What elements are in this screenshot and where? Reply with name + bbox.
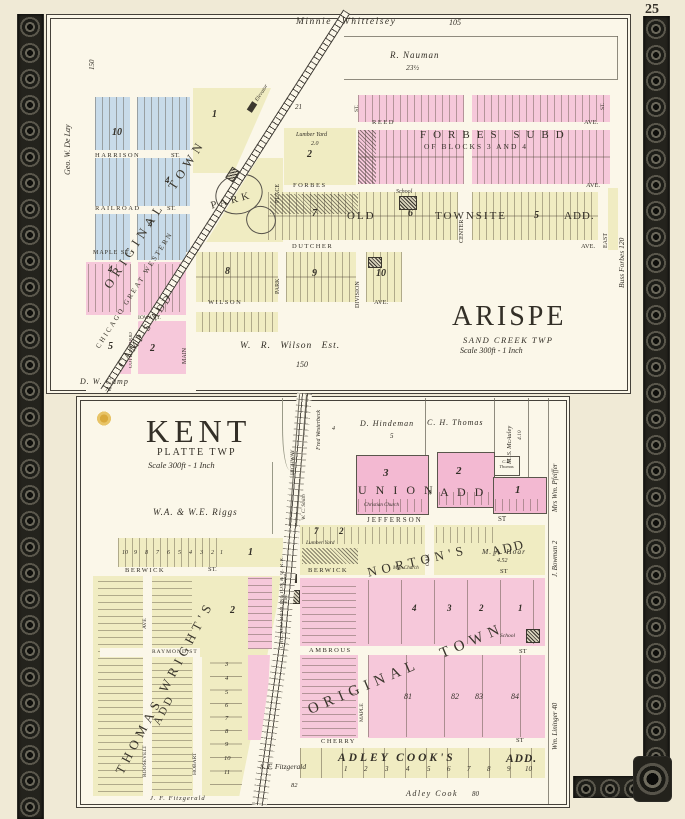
adley-cooks-add-suffix: ADD. — [506, 754, 537, 766]
adley-lot: 5 — [427, 766, 431, 773]
roosevelt-street-label: ROOSEVELT — [143, 715, 149, 777]
owner-delay: Geo. W. De Lay — [64, 55, 72, 175]
block-3-number: 3 — [148, 219, 153, 228]
block-7-number: 7 — [312, 209, 317, 219]
camps-block-2-number: 2 — [150, 344, 155, 354]
block-6-number: 6 — [408, 209, 413, 219]
wrights-top-lot: 5 — [178, 550, 181, 556]
school-label-arispe: School — [396, 189, 412, 195]
lot-83-number: 83 — [475, 693, 483, 701]
wrights-top-lot: 6 — [167, 550, 170, 556]
owner-adley-cook: Adley Cook — [406, 790, 458, 798]
forbes-ave-suffix: AVE. — [586, 183, 600, 190]
nauman-parcel-line-right — [617, 36, 618, 79]
harrison-street-label: HARRISON — [95, 153, 140, 160]
hobart-street-gap — [193, 657, 202, 796]
owner-nauman-acres: 23½ — [406, 64, 419, 72]
nauman-parcel-line-bottom — [344, 79, 618, 80]
block-2-number: 2 — [307, 150, 312, 160]
division-street-label: DIVISION — [355, 254, 361, 308]
owner-camp: D. W. Camp — [80, 378, 129, 386]
nauman-parcel-line-top — [344, 36, 618, 37]
camps-block-5-number: 5 — [108, 342, 113, 352]
owner-hoar: M. A. Hoar — [482, 548, 526, 556]
owner-strip-line — [548, 398, 549, 804]
old-townsite-add: ADD. — [564, 211, 595, 222]
dutcher-street-label: DUTCHER — [292, 244, 333, 251]
wilson-south-lots — [195, 312, 278, 332]
owner-westerbeck-acres: 4 — [332, 426, 335, 432]
wrights-right-lot: 3 — [225, 662, 228, 669]
ink-blotch — [96, 410, 112, 427]
east-street-label: EAST — [603, 210, 609, 248]
parcel-line-3 — [528, 398, 529, 478]
berwick-st-suffix-east: ST — [500, 569, 508, 576]
union-block1-lots — [495, 499, 543, 511]
adley-lot: 7 — [467, 766, 471, 773]
adley-lot: 2 — [364, 766, 368, 773]
lumber-yard-acres: 2.0 — [311, 141, 319, 147]
depot-label-kent: Depot — [283, 571, 288, 585]
iowa-street-gap — [86, 315, 186, 321]
wrights-top-lot: 7 — [156, 550, 159, 556]
me-church-label: M.E. Church — [393, 566, 419, 571]
wrights-block2-number: 2 — [230, 606, 235, 616]
berwick-street-label-west: BERWICK — [125, 568, 165, 575]
owner-fitzgerald-j: J. F. Fitzgerald — [150, 796, 206, 803]
block-4-number: 4 — [165, 176, 170, 185]
reed-ave-suffix: AVE. — [584, 120, 598, 127]
original-block3-number: 3 — [447, 604, 452, 613]
cherry-street-label: CHERRY — [321, 739, 356, 746]
block9-area — [286, 252, 356, 302]
place-street-label: PLACE — [275, 163, 281, 203]
wrights-block1-number: 1 — [248, 548, 253, 558]
maple-street-label-kent: MAPLE — [360, 692, 366, 722]
block8-area — [195, 252, 278, 302]
wrights-right-lot: 4 — [225, 676, 228, 683]
union-block3-number: 3 — [383, 468, 389, 479]
adley-lot: 4 — [406, 766, 410, 773]
union-add-suffix: A D D — [440, 486, 486, 498]
owner-hoar-acres: 4.52 — [497, 558, 508, 564]
old-townsite-old: OLD — [347, 211, 376, 222]
parcel-21-number: 21 — [295, 104, 302, 111]
berwick-st-suffix-west: ST. — [208, 567, 217, 574]
adley-lot: 6 — [447, 766, 451, 773]
wrights-top-lot: 1 — [220, 550, 223, 556]
owner-fitzgerald-s: S. F. Fitzgerald — [260, 763, 306, 771]
forbes-subd-subtitle: OF BLOCKS 3 AND 4 — [424, 143, 528, 151]
camps-block-4-number: 4 — [108, 265, 113, 274]
wrights-right-lot: 11 — [224, 770, 230, 777]
block-5-number: 5 — [534, 211, 539, 221]
owner-lininger: Wm. Lininger 40 — [552, 655, 559, 750]
forbes-subd-hatched-lots — [358, 130, 376, 184]
adley-lot: 8 — [487, 766, 491, 773]
union-block2-number: 2 — [456, 466, 462, 477]
ambrous-street-label: AMBROUS — [309, 648, 352, 655]
kent-scale: Scale 300ft - 1 Inch — [148, 461, 215, 470]
wrights-right-lot: 9 — [225, 742, 228, 749]
ambrous-st-suffix: ST — [519, 649, 527, 656]
owner-westerbeck: Fred Westerbeck — [316, 402, 322, 450]
union-street-label: ST — [428, 479, 433, 495]
owner-smith: W. C. Smith — [302, 492, 308, 520]
wilson-ave-suffix: AVE. — [374, 300, 388, 307]
adley-cooks-title: ADLEY COOK'S — [338, 753, 456, 765]
old-townsite-townsite: TOWNSITE — [435, 211, 507, 222]
corner-rosette-ornament — [633, 756, 672, 802]
wilson-street-label: WILSON — [208, 300, 242, 307]
berwick-street-label-east: BERWICK — [308, 568, 348, 575]
adley-lot: 1 — [344, 766, 348, 773]
owner-wilson-acres: 150 — [296, 361, 308, 369]
owner-bowman: J. Bowman 2 — [552, 522, 559, 577]
owner-thomas-small: C.H. Thomas — [496, 460, 517, 469]
hobart-street-label: HOBART — [193, 730, 199, 775]
nortons-block7-number: 7 — [314, 527, 319, 536]
block-1-number: 1 — [212, 110, 217, 120]
adley-lot: 3 — [385, 766, 389, 773]
wrights-right-lot: 5 — [225, 690, 228, 697]
owner-fitzgerald-s-acres: 82 — [291, 783, 298, 790]
owner-hindeman-acres: 5 — [390, 433, 394, 440]
owner-nauman: R. Nauman — [390, 51, 440, 60]
wrights-top-lot: 10 — [122, 550, 128, 556]
wrights-right-lot: 10 — [224, 756, 231, 763]
pink-strip-north — [248, 577, 272, 649]
forbes-subd-north-row — [358, 95, 610, 122]
lot-82-number: 82 — [451, 693, 459, 701]
christian-church-label: Christian Church — [364, 503, 399, 508]
wrights-right-lot: 8 — [225, 729, 228, 736]
owner-pfeiffer: Mrs Wm. Pfeiffer — [552, 412, 559, 512]
nortons-block2-number: 2 — [339, 527, 344, 536]
railroad-st-suffix: ST. — [167, 206, 176, 213]
owner-camp-acres: 72 — [105, 387, 112, 394]
original-block1-number: 1 — [518, 604, 523, 613]
berwick-street-gap — [93, 567, 283, 576]
wrights-top-lot: 8 — [145, 550, 148, 556]
school-building-kent — [526, 629, 540, 643]
owner-adley-cook-acres: 80 — [472, 791, 479, 798]
parcel-line-1 — [425, 398, 426, 455]
adley-lot: 10 — [525, 766, 532, 773]
left-border-ornament — [17, 14, 44, 819]
adley-lot: 9 — [507, 766, 511, 773]
kent-title: KENT — [146, 415, 251, 447]
arispe-title: ARISPE — [452, 303, 566, 331]
dutcher-ave-suffix: AVE. — [581, 244, 595, 251]
owner-wilson-est: W. R. Wilson Est. — [240, 342, 340, 352]
union-add-title: U N I O N — [358, 484, 436, 496]
lumber-yard-label: Lumber Yard — [296, 132, 327, 138]
block-10b-number: 10 — [376, 269, 386, 279]
wrights-top-lot: 2 — [211, 550, 214, 556]
nortons-lots-east — [436, 527, 498, 543]
jefferson-street-label: JEFFERSON — [367, 517, 423, 524]
arispe-scale: Scale 300ft - 1 Inch — [460, 347, 523, 355]
page-number: 25 — [645, 3, 659, 17]
owner-buss-forbes: Buss Forbes 120 — [618, 188, 626, 288]
wrights-right-lot: 6 — [225, 703, 228, 710]
raymond-street-label: RAYMOND ST — [152, 650, 198, 656]
harrison-st-suffix: ST. — [171, 153, 180, 160]
original-lots-west-n — [302, 580, 356, 643]
reed-street-label: REED — [372, 120, 395, 127]
forbes-subd-title: FORBES SUBD — [420, 130, 571, 141]
east-st-suffix: ST. — [601, 92, 607, 110]
owner-hindeman: D. Hindeman — [360, 420, 414, 428]
wrights-top-lot: 4 — [189, 550, 192, 556]
lumber-yard-kent: Lumber Yard — [306, 541, 334, 547]
owner-mcauley: M. S. McAuley — [507, 402, 514, 464]
park-street-label: PARK — [275, 258, 281, 294]
railroad-street-label: RAILROAD — [95, 206, 141, 213]
owner-whittelsey: Minnie Whittelsey — [296, 18, 396, 28]
main-street-label: MAIN — [182, 320, 188, 364]
right-border-ornament — [643, 16, 670, 772]
owner-thomas: C. H. Thomas — [427, 419, 483, 427]
owner-riggs: W.A. & W.E. Riggs — [153, 508, 238, 517]
wrights-top-lot: 9 — [134, 550, 137, 556]
lot-81-number: 81 — [404, 693, 412, 701]
highway-label: HIGHWAY — [291, 437, 297, 475]
subd-st-label: ST. — [355, 94, 361, 112]
jefferson-st-suffix: ST — [498, 516, 506, 523]
wrights-right-lot: 7 — [225, 716, 228, 723]
owner-whittelsey-acres: 105 — [449, 19, 461, 27]
block-9-number: 9 — [312, 269, 317, 279]
school-label-kent: School — [500, 634, 515, 640]
original-block2-number: 2 — [479, 604, 484, 613]
roosevelt-ave-suffix: AVE — [143, 605, 149, 629]
union-block1-number: 1 — [515, 485, 521, 496]
original-block4-number: 4 — [412, 604, 417, 613]
church-building-arispe — [368, 257, 382, 268]
owner-delay-acres: 150 — [89, 50, 96, 70]
wrights-top-lot: 3 — [200, 550, 203, 556]
elev-label-kent: Elev. — [284, 589, 289, 603]
arispe-township: SAND CREEK TWP — [463, 336, 553, 345]
owner-mcauley-acres: 4.10 — [518, 420, 524, 440]
parcel-line-2 — [494, 398, 495, 458]
cherry-st-suffix: ST — [516, 738, 524, 745]
lot-84-number: 84 — [511, 693, 519, 701]
atlas-page: 25 CHICAGO GREAT WESTERN Elevator Minnie… — [0, 0, 685, 819]
nortons-hatched-lots — [302, 548, 358, 564]
kent-township: PLATTE TWP — [157, 448, 237, 458]
block-8-number: 8 — [225, 267, 230, 277]
forbes-street-label: FORBES — [293, 183, 327, 190]
block-10-number: 10 — [112, 128, 122, 138]
